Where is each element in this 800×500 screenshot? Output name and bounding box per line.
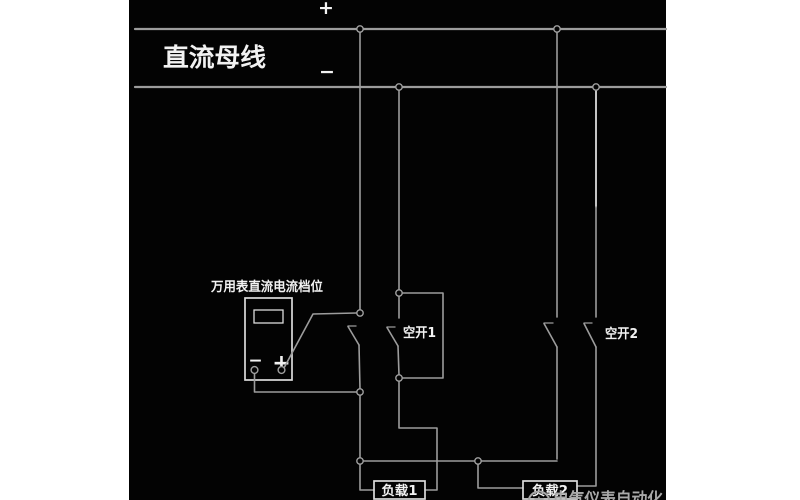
node-rail-left	[357, 458, 363, 464]
breaker1-label: 空开1	[403, 325, 436, 341]
breaker1: 空开1	[348, 293, 443, 389]
breaker2-poleB-blade	[584, 324, 596, 348]
node-breaker1-poleA-bottom	[357, 389, 363, 395]
load2-left-lead	[478, 464, 523, 488]
bus-plus-sign: +	[318, 0, 334, 19]
multimeter-plus-lead	[285, 313, 357, 367]
node-rail-load2-tap	[475, 458, 481, 464]
bus-minus-sign: −	[319, 61, 335, 83]
node-breaker1-poleB-bottom	[396, 375, 402, 381]
multimeter-label: 万用表直流电流档位	[210, 279, 323, 295]
connection-nodes	[357, 26, 599, 464]
node-posbus-branch1	[357, 26, 363, 32]
dc-bus-label: 直流母线	[163, 43, 266, 72]
node-negbus-branch1	[396, 84, 402, 90]
breaker1-poleB-lower-stub	[398, 346, 399, 375]
feeder-drops	[360, 31, 596, 317]
node-negbus-branch2	[593, 84, 599, 90]
node-breaker1-poleB-top	[396, 290, 402, 296]
multimeter-plus-terminal	[278, 367, 285, 374]
breaker2-poleB-lower-wire	[577, 347, 596, 486]
breaker2: 空开2	[544, 323, 638, 486]
breaker2-poleA-blade	[544, 324, 557, 348]
watermark-text: 电气仪表自动化	[553, 489, 663, 500]
breaker1-poleA-lower-stub	[359, 345, 360, 389]
breaker2-label: 空开2	[605, 326, 638, 342]
multimeter-display	[254, 310, 283, 323]
multimeter-minus-terminal	[251, 367, 258, 374]
circuit-diagram: 直流母线 + − 空开1	[0, 0, 800, 500]
node-breaker1-poleA-top	[357, 310, 363, 316]
dc-bus: 直流母线 + −	[135, 0, 666, 87]
breaker1-poleA-blade	[348, 327, 359, 346]
load1-left-lead	[360, 464, 374, 490]
loads: 负载1 负载2	[360, 381, 577, 499]
load1-label: 负载1	[382, 483, 418, 499]
multimeter-minus-lead	[255, 374, 357, 393]
screenshot-root: 直流母线 + − 空开1	[0, 0, 800, 500]
watermark-logo-glyph: 电	[533, 495, 545, 500]
breaker1-poleB-blade	[387, 328, 398, 347]
node-posbus-branch2	[554, 26, 560, 32]
multimeter: 万用表直流电流档位 − +	[210, 279, 356, 392]
load1-right-lead	[399, 381, 437, 490]
